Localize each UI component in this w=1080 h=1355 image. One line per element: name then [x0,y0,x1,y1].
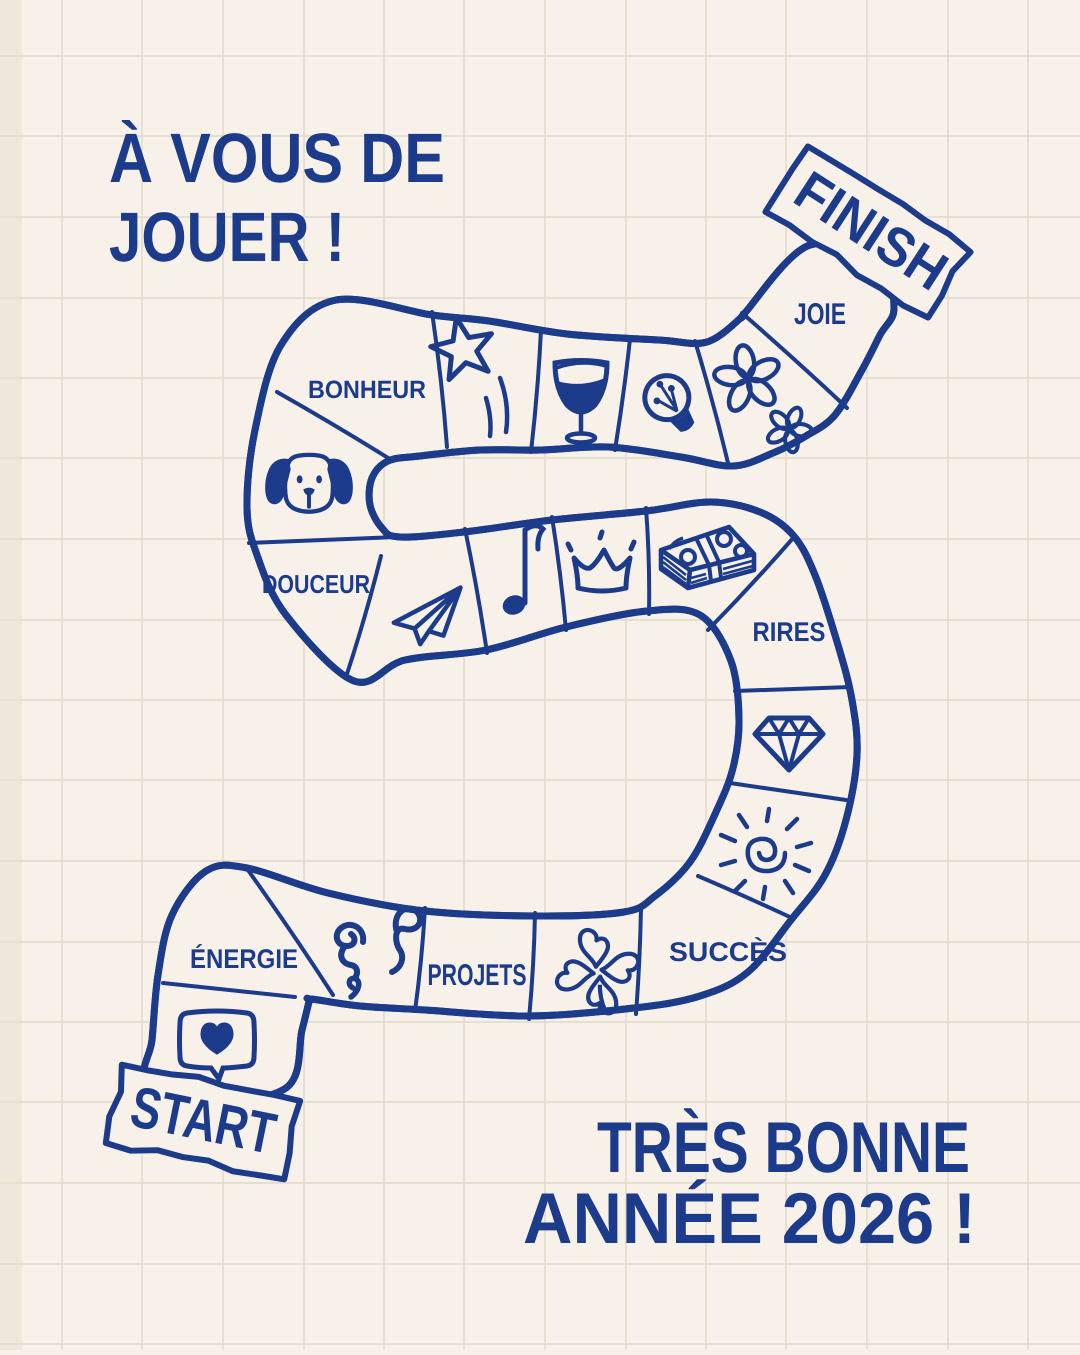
svg-text:TRÈS BONNE: TRÈS BONNE [597,1108,970,1188]
svg-text:SUCCÈS: SUCCÈS [669,937,787,967]
svg-text:RIRES: RIRES [753,617,826,647]
svg-text:PROJETS: PROJETS [428,959,527,992]
svg-text:ÉNERGIE: ÉNERGIE [190,944,298,974]
svg-text:ANNÉE 2026 !: ANNÉE 2026 ! [523,1179,976,1259]
svg-text:BONHEUR: BONHEUR [308,376,426,404]
svg-text:DOUCEUR: DOUCEUR [262,569,370,599]
svg-text:JOIE: JOIE [794,298,846,331]
svg-text:JOUER !: JOUER ! [109,198,345,276]
svg-text:À VOUS DE: À VOUS DE [109,119,445,197]
